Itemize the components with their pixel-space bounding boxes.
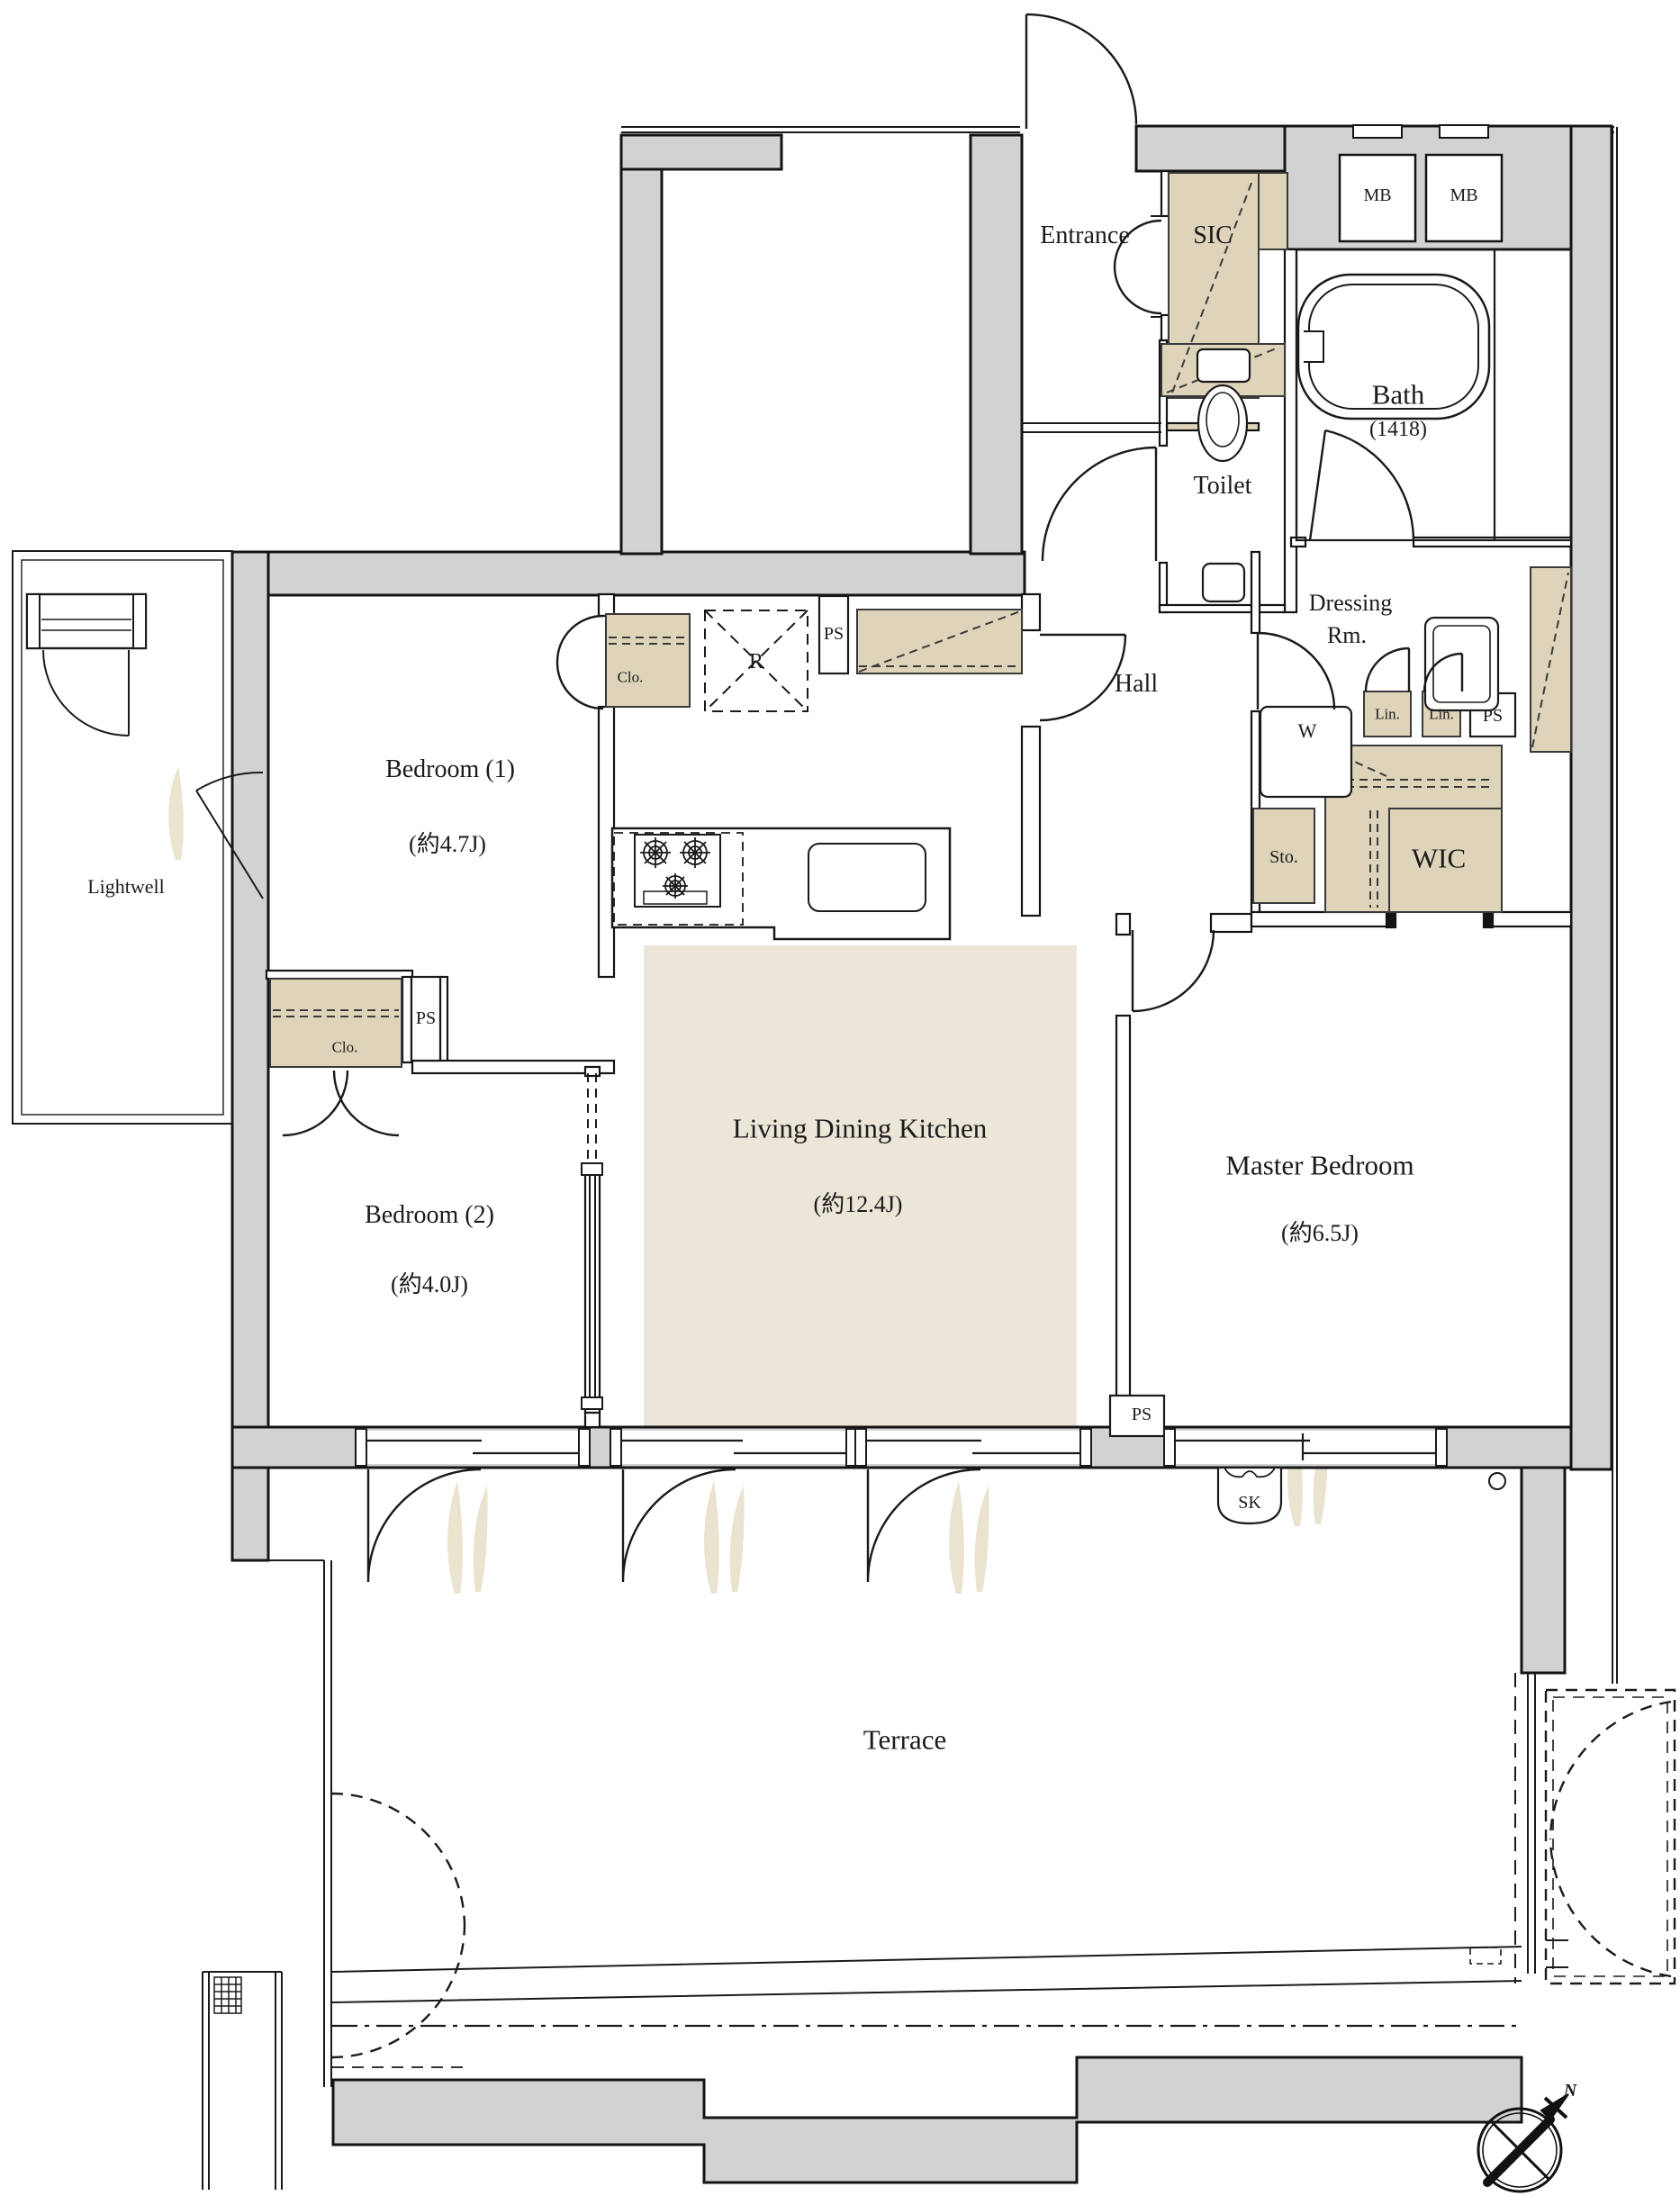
room-size-ldk: (約12.4J) xyxy=(814,1193,903,1216)
fixture-label-ps-master: PS xyxy=(1132,1405,1152,1423)
dashed-service-area xyxy=(331,1690,1675,2067)
room-label-dressing-2: Rm. xyxy=(1327,624,1367,647)
room-label-master: Master Bedroom xyxy=(1225,1152,1414,1179)
fixture-label-closet-b1: Clo. xyxy=(618,670,644,685)
fixture-label-ps-bedroom: PS xyxy=(416,1009,436,1027)
room-label-sic: SIC xyxy=(1193,223,1233,249)
fixture-label-washer: W xyxy=(1298,721,1317,741)
room-label-bedroom2: Bedroom (2) xyxy=(365,1203,494,1228)
room-label-bedroom1: Bedroom (1) xyxy=(385,757,515,782)
room-label-entrance: Entrance xyxy=(1040,223,1130,249)
room-size-master: (約6.5J) xyxy=(1281,1222,1359,1245)
fixture-label-closet-b2: Clo. xyxy=(332,1040,358,1055)
room-label-ldk: Living Dining Kitchen xyxy=(733,1115,987,1143)
fixture-label-refrigerator: R xyxy=(749,651,763,673)
fixture-label-sk: SK xyxy=(1238,1494,1261,1512)
fixture-label-storage: Sto. xyxy=(1269,848,1298,866)
fixture-label-ps-dressing: PS xyxy=(1483,707,1503,725)
compass-north-label: N xyxy=(1564,2082,1576,2100)
floor-plan: Entrance SIC MB MB Bath (1418) Toilet Ha… xyxy=(0,0,1680,2196)
room-size-bedroom1: (約4.7J) xyxy=(409,833,486,856)
room-label-hall: Hall xyxy=(1115,672,1158,697)
floor-plan-drawing xyxy=(0,0,1680,2196)
fixture-label-linen2: Lin. xyxy=(1429,707,1454,722)
room-label-terrace: Terrace xyxy=(863,1726,946,1754)
drain-pipe-icon xyxy=(1489,1473,1505,1489)
windows xyxy=(356,1429,1447,1466)
fixture-label-ps-kitchen: PS xyxy=(824,625,844,643)
fixture-label-linen1: Lin. xyxy=(1375,707,1400,722)
room-label-toilet: Toilet xyxy=(1194,474,1252,499)
entrance-step xyxy=(1022,423,1161,432)
room-label-wic: WIC xyxy=(1412,845,1466,872)
room-size-bedroom2: (約4.0J) xyxy=(391,1273,468,1297)
fixture-label-mb2: MB xyxy=(1450,186,1477,204)
terrace-drain-grate-icon xyxy=(214,1977,241,2013)
fixture-label-mb1: MB xyxy=(1363,186,1391,204)
room-label-lightwell: Lightwell xyxy=(87,877,165,897)
room-size-bath: (1418) xyxy=(1369,419,1427,440)
room-label-dressing-1: Dressing xyxy=(1309,592,1392,615)
room-label-bath: Bath xyxy=(1372,381,1425,409)
lightwell-enclosure xyxy=(13,551,232,1124)
